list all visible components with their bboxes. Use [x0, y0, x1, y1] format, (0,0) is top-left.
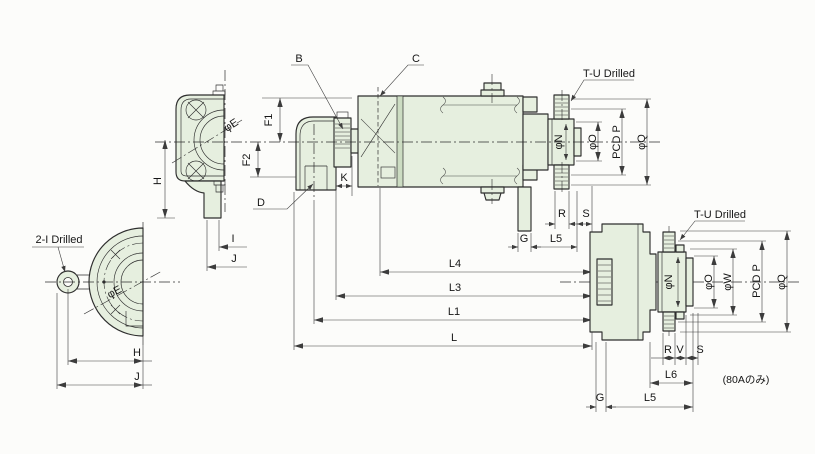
label-tu-drilled-80a: T-U Drilled — [694, 209, 746, 221]
label-j-top: J — [231, 253, 237, 265]
label-2i-drilled: 2-I Drilled — [35, 234, 82, 246]
view-bottom-left-flange-face: φE 2-I Drilled H J — [32, 228, 162, 389]
label-l3: L3 — [449, 282, 461, 294]
flange-pipe-stub — [185, 181, 221, 218]
label-g-main: G — [520, 233, 529, 245]
label-h-bottom: H — [133, 347, 141, 359]
label-phi-o-main: φO — [587, 134, 599, 150]
label-k: K — [340, 172, 348, 184]
label-s-80a: S — [696, 344, 703, 356]
label-f2: F2 — [241, 154, 253, 167]
label-l6: L6 — [665, 369, 677, 381]
label-h-top: H — [152, 177, 164, 185]
label-phi-w-80a: φW — [722, 273, 734, 291]
label-phi-n-main: φN — [553, 134, 565, 149]
raised-face-80a — [686, 258, 693, 306]
drain-pipe — [518, 187, 531, 231]
label-r-80a: R — [664, 344, 672, 356]
technical-drawing: φE H I J φE 2-I Drilled — [0, 0, 815, 454]
label-g-80a: G — [596, 392, 605, 404]
label-l: L — [451, 332, 457, 344]
drawing-sheet: φE H I J φE 2-I Drilled — [0, 0, 815, 454]
elbow-body — [296, 117, 336, 190]
label-d: D — [257, 197, 265, 209]
label-phi-q-80a: φQ — [776, 274, 788, 290]
label-note-80a: (80Aのみ) — [723, 374, 770, 386]
grease-bolt-top — [481, 83, 504, 96]
label-phi-q-main: φQ — [636, 134, 648, 150]
flange-tab — [676, 245, 684, 252]
label-v-80a: V — [676, 344, 684, 356]
view-top-left-flange-section: φE H I J — [152, 85, 247, 271]
label-l4: L4 — [449, 258, 461, 270]
label-i: I — [231, 233, 234, 245]
label-b: B — [295, 53, 302, 65]
body-tab — [523, 97, 537, 112]
label-r-main: R — [558, 208, 566, 220]
label-phi-o-80a: φO — [703, 274, 715, 290]
view-main-assembly — [296, 83, 581, 231]
flange-tab — [676, 312, 684, 319]
label-phi-n-80a: φN — [663, 274, 675, 289]
union-nut — [334, 118, 351, 167]
grease-bolt-bottom — [481, 187, 504, 200]
stud-icon — [213, 85, 225, 95]
label-pcd-p-80a: PCD P — [751, 264, 763, 298]
label-s-main: S — [582, 208, 589, 220]
label-l1: L1 — [448, 306, 460, 318]
stud-top-80a — [663, 232, 675, 252]
label-j-bottom: J — [134, 371, 140, 383]
label-tu-drilled-main: T-U Drilled — [583, 68, 635, 80]
hex-plug — [597, 259, 612, 305]
view-bottom-right-80a — [590, 224, 693, 340]
body-ring — [397, 96, 403, 187]
label-l5-80a: L5 — [644, 392, 656, 404]
label-l5-main: L5 — [550, 233, 562, 245]
label-pcd-p-main: PCD P — [611, 125, 623, 159]
label-c: C — [412, 53, 420, 65]
label-f1: F1 — [263, 114, 275, 127]
